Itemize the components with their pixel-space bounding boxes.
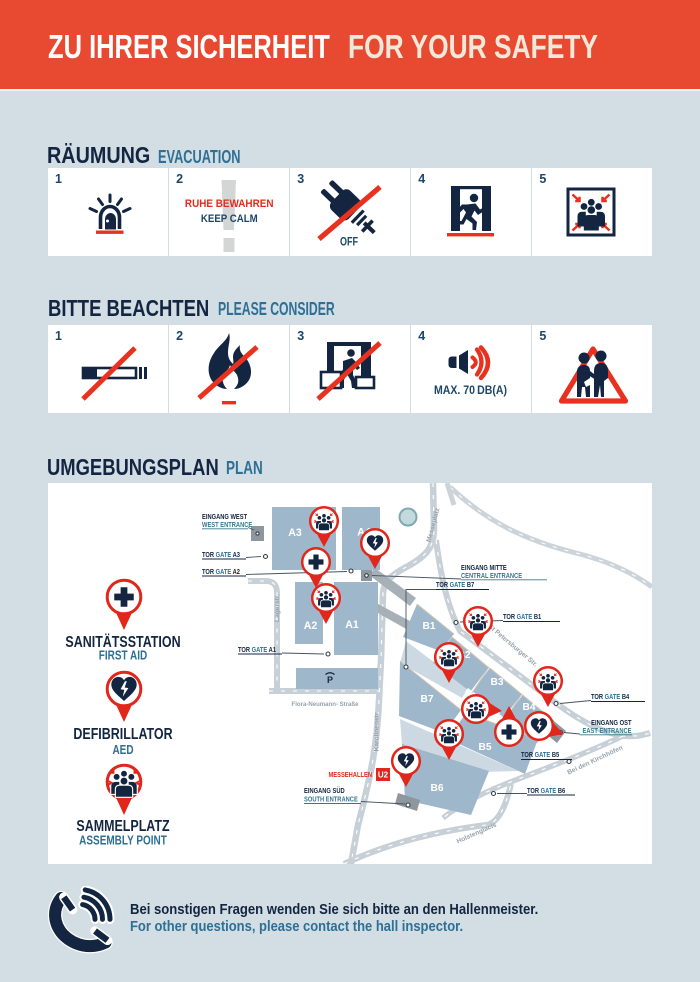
svg-text:EINGANG OST: EINGANG OST (591, 719, 631, 727)
svg-text:Karolinenstr: Karolinenstr (374, 712, 381, 751)
svg-text:B5: B5 (478, 742, 491, 753)
svg-text:EINGANG WEST: EINGANG WEST (202, 513, 247, 521)
svg-text:CENTRAL ENTRANCE: CENTRAL ENTRANCE (461, 572, 523, 580)
svg-text:B4: B4 (522, 702, 535, 713)
svg-text:TOR GATE B1: TOR GATE B1 (503, 613, 542, 621)
svg-text:B1: B1 (422, 621, 435, 632)
svg-text:B3: B3 (490, 677, 503, 688)
svg-text:U2: U2 (378, 771, 389, 780)
svg-text:A2: A2 (304, 620, 318, 632)
svg-text:AED: AED (112, 744, 133, 757)
svg-text:Flora-Neumann- Straße: Flora-Neumann- Straße (292, 701, 359, 708)
svg-text:EAST ENTRANCE: EAST ENTRANCE (583, 727, 632, 735)
svg-text:TOR GATE A3: TOR GATE A3 (202, 551, 240, 559)
svg-text:EINGANG MITTE: EINGANG MITTE (461, 564, 507, 572)
svg-text:TOR GATE B4: TOR GATE B4 (591, 693, 630, 701)
svg-text:TOR GATE A2: TOR GATE A2 (202, 568, 240, 576)
svg-text:EINGANG SÜD: EINGANG SÜD (304, 785, 345, 795)
svg-text:TOR GATE B7: TOR GATE B7 (436, 581, 475, 589)
svg-text:SAMMELPLATZ: SAMMELPLATZ (76, 818, 169, 836)
svg-text:Lagerstr.: Lagerstr. (274, 594, 281, 622)
svg-text:B6: B6 (430, 783, 443, 794)
svg-text:P: P (327, 675, 333, 685)
svg-text:MESSEHALLEN: MESSEHALLEN (328, 771, 372, 779)
svg-text:A1: A1 (345, 619, 359, 631)
svg-text:DEFIBRILLATOR: DEFIBRILLATOR (73, 726, 173, 744)
svg-text:TOR GATE B5: TOR GATE B5 (521, 751, 560, 759)
svg-text:SOUTH ENTRANCE: SOUTH ENTRANCE (304, 796, 358, 804)
svg-text:MAX. 70 DB(A): MAX. 70 DB(A) (434, 385, 507, 397)
svg-text:B7: B7 (420, 694, 433, 705)
svg-text:FIRST AID: FIRST AID (99, 650, 147, 663)
svg-text:OFF: OFF (340, 237, 358, 249)
svg-text:TOR GATE A1: TOR GATE A1 (238, 646, 276, 654)
svg-text:A3: A3 (288, 527, 302, 539)
svg-text:ASSEMBLY POINT: ASSEMBLY POINT (79, 835, 167, 848)
svg-text:TOR GATE B6: TOR GATE B6 (527, 787, 566, 795)
svg-text:WEST ENTRANCE: WEST ENTRANCE (202, 521, 253, 529)
